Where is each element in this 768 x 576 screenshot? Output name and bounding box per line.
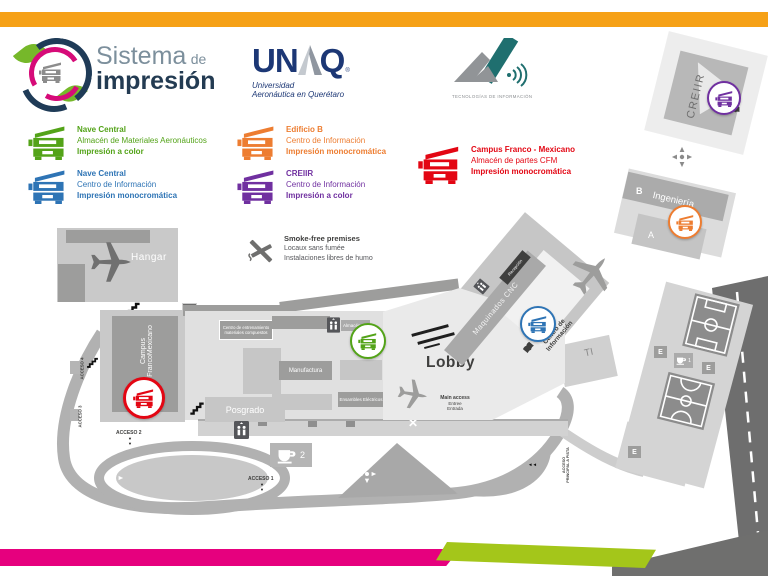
centro-entrenamiento-label: Centro de entrenamiento materiales compu… [219, 320, 273, 340]
e-building-label: E [702, 362, 715, 374]
b-label: B [636, 186, 643, 196]
marker-centro-info-blue [520, 306, 556, 342]
e-text: E [632, 449, 637, 456]
building-posgrado: Posgrado [205, 397, 285, 422]
printer-icon [676, 214, 695, 231]
centro-ent-line2: materiales compuestos [224, 330, 267, 335]
cafeteria-number: 1 [688, 358, 691, 364]
printer-icon [715, 90, 734, 107]
ensambles-label: Ensambles Eléctricos [338, 392, 384, 407]
acceso-3-text: ACCESO 3 [78, 406, 83, 428]
compass-icon [671, 146, 693, 168]
e-building-label: E [628, 446, 641, 458]
marker-nave-green [350, 323, 386, 359]
acceso-principal-label: ACCESO PRINCIPAL A PISTA [559, 437, 573, 493]
acceso-2-arrows: ▼ ▼ [128, 437, 132, 446]
campus-label-line2: FrancoMexicano [147, 325, 154, 377]
campus-label-line1: Campus [140, 338, 147, 364]
door-tag [308, 421, 317, 427]
marker-creiir-purple [707, 81, 741, 115]
building-block [272, 316, 330, 329]
elevator-icon [327, 317, 340, 333]
ti-text: TI [583, 347, 594, 360]
campus-map-poster: Sistema de impresión UN Q ® Universidad … [0, 0, 768, 576]
e-text: E [658, 349, 663, 356]
e-building-label: E [654, 346, 667, 358]
cafeteria-number: 2 [300, 450, 305, 460]
manufactura-text: Manufactura [289, 368, 322, 374]
acceso-1-arrows: ▼ ▼ [260, 483, 264, 492]
posgrado-text: Posgrado [226, 405, 265, 415]
compass-icon [104, 468, 124, 488]
main-access-es: Entrada [447, 406, 463, 411]
marker-campus-fm-red [123, 377, 165, 419]
footer-bar-magenta [0, 549, 460, 566]
printer-icon [133, 388, 155, 408]
printer-icon [528, 315, 548, 333]
stairs-icon [189, 399, 205, 415]
airplane-icon [393, 375, 430, 412]
cafeteria-1: 1 [674, 353, 693, 368]
door-tag [346, 421, 355, 427]
coffee-cup-icon [676, 356, 687, 365]
compass-icon [357, 464, 377, 484]
acceso-principal-arrows: ◄◄ [528, 462, 537, 467]
compass-icon [488, 456, 506, 474]
manufactura-label: Manufactura [279, 361, 332, 380]
acceso-3-label: ACCESO 3 [76, 395, 85, 439]
arrow-down-icon: ▼ [260, 488, 264, 493]
e-text: E [706, 365, 711, 372]
marker-edificio-b-orange [668, 205, 702, 239]
acceso-4-label: ACCESO 4 [78, 347, 87, 391]
elevator-icon [234, 421, 249, 439]
coffee-cup-icon [277, 447, 297, 464]
a-label: A [648, 230, 654, 240]
building-block [243, 348, 281, 394]
building-block [58, 264, 85, 302]
acceso-4-text: ACCESO 4 [80, 358, 85, 380]
hangar-label: Hangar [131, 252, 167, 263]
acceso-principal-line2: PRINCIPAL A PISTA [566, 447, 570, 483]
cafeteria-2: 2 [270, 443, 312, 467]
main-access-label: Main access Entree Entrada [428, 392, 482, 414]
stairs-icon [86, 355, 99, 368]
ensambles-text: Ensambles Eléctricos [339, 397, 382, 402]
printer-icon [358, 332, 378, 350]
building-block [340, 360, 382, 380]
arrow-down-icon: ▼ [128, 442, 132, 447]
airplane-icon [88, 240, 132, 284]
